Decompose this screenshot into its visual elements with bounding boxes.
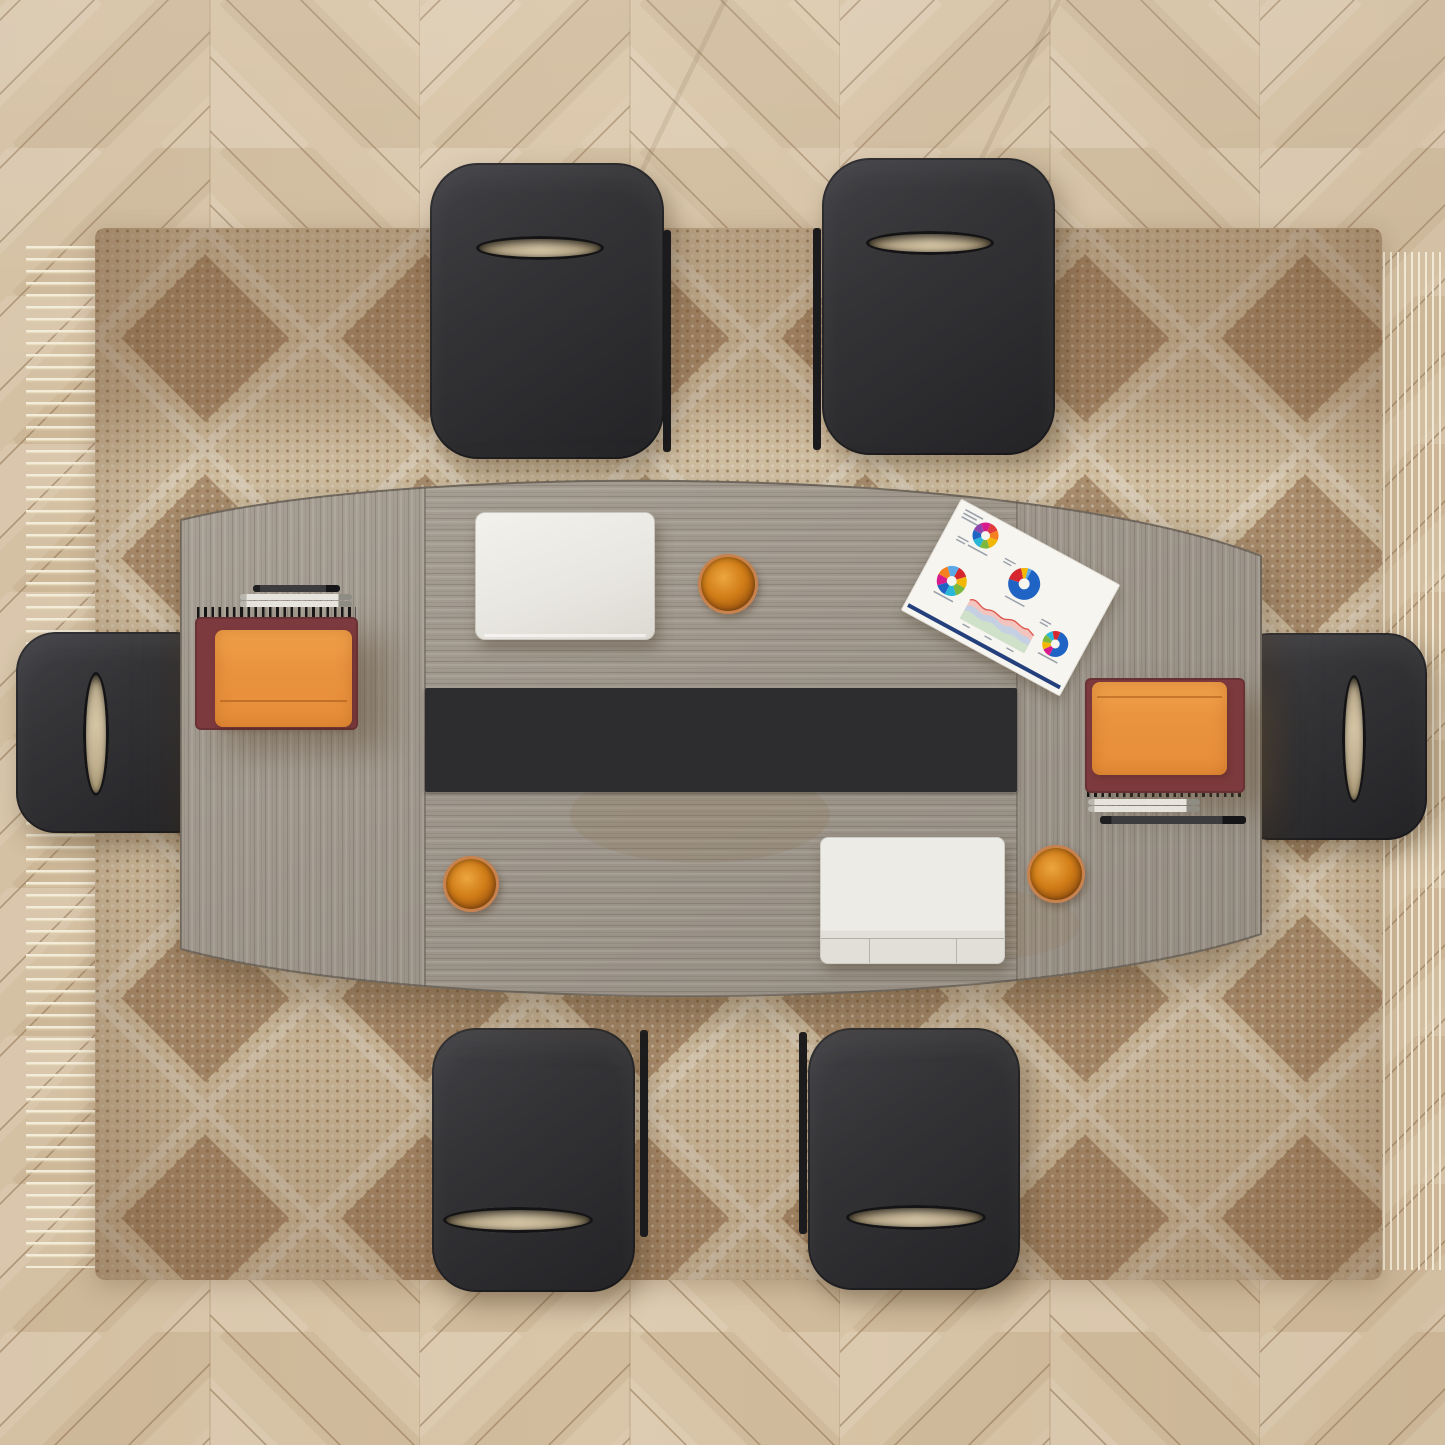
- table-runner: [425, 688, 1017, 792]
- notebook-flap-seam: [1097, 696, 1221, 698]
- drink-cup-bottom-left: [443, 856, 499, 912]
- doc-donut-chart-a: [977, 527, 995, 545]
- orange-notebook-left: [215, 630, 352, 727]
- silver-pen-left-1: [240, 594, 352, 600]
- notebook-flap-seam: [220, 700, 346, 702]
- drink-cup-bottom-right: [1027, 845, 1085, 903]
- conference-table-scene: [0, 0, 1445, 1445]
- doc-donut-chart-d: [1046, 635, 1064, 653]
- doc-donut-chart-c: [942, 571, 962, 591]
- black-pen-left: [253, 585, 340, 592]
- silver-pen-right-2: [1088, 806, 1200, 812]
- drink-cup-top: [698, 554, 758, 614]
- orange-notebook-right: [1092, 682, 1227, 775]
- silver-pen-left-2: [240, 601, 352, 607]
- laptop-deck-divider: [956, 939, 957, 963]
- laptop-deck-divider: [869, 939, 870, 963]
- closed-laptop: [475, 512, 655, 640]
- open-laptop: [820, 837, 1005, 964]
- doc-donut-chart-b: [1013, 573, 1035, 595]
- laptop-hinge-line: [821, 938, 1004, 939]
- black-pen-right: [1100, 816, 1246, 824]
- silver-pen-right-1: [1088, 799, 1200, 805]
